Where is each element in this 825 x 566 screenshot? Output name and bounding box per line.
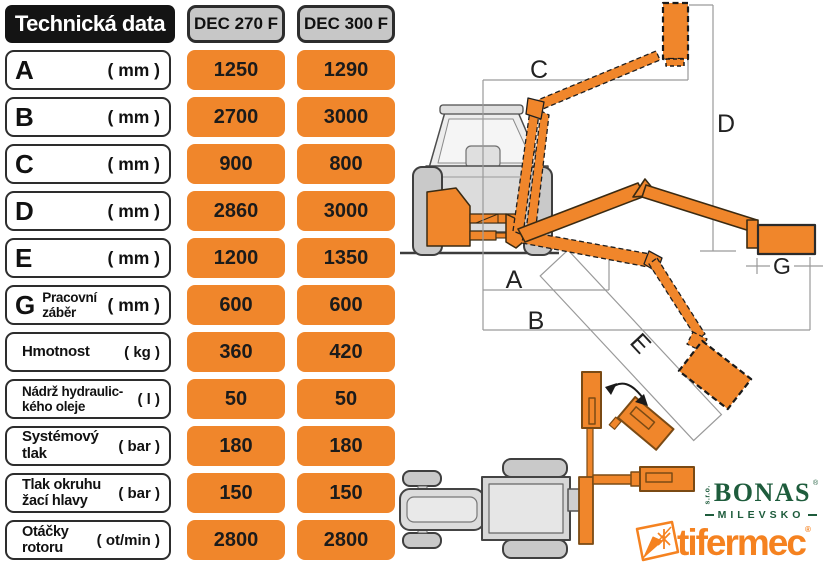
dim-label-e: E [624,328,656,359]
dim-label-a: A [506,266,523,294]
mower-head-horizontal [758,225,815,254]
rear-wheel-bottom [503,540,567,558]
front-wheel-top [403,471,441,486]
datasheet-page: Technická data DEC 270 F DEC 300 F A ( m… [0,0,825,566]
front-wheel-bottom [403,533,441,548]
bonas-wordmark: BONAS [714,480,811,506]
registered-mark: ® [805,525,811,534]
registered-mark: ® [813,480,818,487]
tifermec-wordmark: tifermec [677,524,805,561]
dim-label-b: B [528,307,545,335]
dim-label-g: G [773,253,791,279]
bonas-logo: s.r.o. BONAS ® MILEVSKO [700,480,822,521]
head-rotation-detail [582,372,674,450]
mower-head-ditch [679,341,751,409]
boom-ditch-position [522,231,751,409]
dim-label-d: D [717,110,735,138]
dim-label-c: C [530,56,548,84]
mower-head-raised [663,3,688,59]
mower-head-top-view [640,467,694,491]
rear-wheel-top [503,459,567,477]
tifermec-logo: tifermec ® [633,517,811,561]
bonas-prefix: s.r.o. [704,497,711,505]
head-position-vertical [582,372,601,428]
